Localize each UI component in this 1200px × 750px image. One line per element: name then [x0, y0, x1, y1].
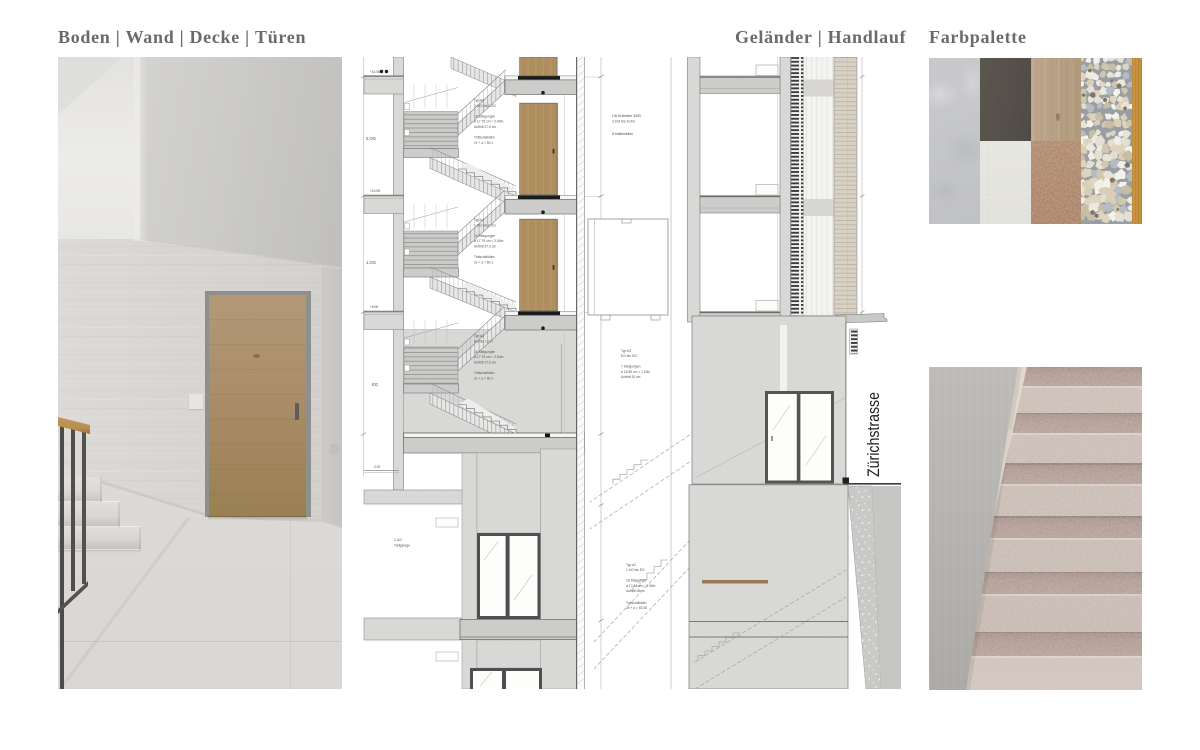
svg-text:18 Steigungen: 18 Steigungen	[626, 579, 647, 583]
svg-text:Trittschalldäm.: Trittschalldäm.	[474, 255, 495, 259]
svg-text:2x + a = 60.1: 2x + a = 60.1	[474, 376, 493, 380]
svg-text:Trittschalldäm.: Trittschalldäm.	[474, 136, 495, 140]
svg-text:ø 17.75 cm = 2.84m: ø 17.75 cm = 2.84m	[474, 120, 504, 124]
svg-text:Typ A4: Typ A4	[474, 99, 484, 103]
svg-text:2.UG bis 6.OG: 2.UG bis 6.OG	[612, 120, 635, 124]
svg-text:EG: EG	[372, 382, 378, 387]
svg-text:ø 17.75 cm = 2.84m: ø 17.75 cm = 2.84m	[474, 355, 504, 359]
svg-text:EG bis 1.OG: EG bis 1.OG	[474, 339, 493, 343]
svg-text:Auftritt 27.5 cm: Auftritt 27.5 cm	[474, 125, 496, 129]
svg-text:2.OG: 2.OG	[366, 136, 376, 141]
svg-text:+10.08: +10.08	[370, 189, 380, 193]
svg-text:Typ A2: Typ A2	[626, 563, 636, 567]
svg-text:8 Haltestellen: 8 Haltestellen	[612, 132, 633, 136]
svg-text:ø 17.42 cm = 3.05m: ø 17.42 cm = 3.05m	[626, 584, 656, 588]
svg-text:+14.08: +14.08	[370, 70, 380, 74]
svg-text:2.OG bis 3.OG: 2.OG bis 3.OG	[474, 104, 496, 108]
svg-text:Trittschalldäm.: Trittschalldäm.	[474, 371, 495, 375]
svg-text:Auftritt 27.5 cm: Auftritt 27.5 cm	[474, 361, 496, 365]
svg-text:0.00: 0.00	[374, 465, 380, 469]
svg-text:Auftritt 30 cm: Auftritt 30 cm	[621, 375, 641, 379]
svg-text:2x + a = 60.1: 2x + a = 60.1	[474, 141, 493, 145]
svg-text:16 Steigungen: 16 Steigungen	[474, 234, 495, 238]
svg-text:Typ A4: Typ A4	[474, 218, 484, 222]
svg-text:1.OG: 1.OG	[366, 260, 376, 265]
svg-text:Zürichstrasse: Zürichstrasse	[864, 392, 883, 477]
svg-text:EG bis OG: EG bis OG	[621, 354, 637, 358]
svg-text:16 Steigungen: 16 Steigungen	[474, 350, 495, 354]
svg-text:à 16.96 cm = 1.19m: à 16.96 cm = 1.19m	[621, 370, 650, 374]
svg-text:Auftritt 27.5 cm: Auftritt 27.5 cm	[474, 245, 496, 249]
svg-text:+6.08: +6.08	[370, 305, 378, 309]
svg-text:Lift Schindler 3400: Lift Schindler 3400	[612, 114, 641, 118]
svg-text:2x + a = 63.08: 2x + a = 63.08	[626, 606, 647, 610]
svg-text:Typ A3: Typ A3	[621, 349, 631, 353]
svg-text:7 Steigungen: 7 Steigungen	[621, 365, 641, 369]
svg-text:1.OG bis 2.OG: 1.OG bis 2.OG	[474, 223, 496, 227]
svg-text:2x + a = 60.1: 2x + a = 60.1	[474, 260, 493, 264]
svg-text:1.UG bis EG: 1.UG bis EG	[626, 568, 645, 572]
svg-text:16 Steigungen: 16 Steigungen	[474, 114, 495, 118]
svg-text:Tiefgarage: Tiefgarage	[394, 544, 410, 548]
svg-text:Typ A4: Typ A4	[474, 334, 484, 338]
svg-text:ø 17.75 cm = 2.84m: ø 17.75 cm = 2.84m	[474, 239, 504, 243]
svg-text:1.UG: 1.UG	[394, 538, 402, 542]
